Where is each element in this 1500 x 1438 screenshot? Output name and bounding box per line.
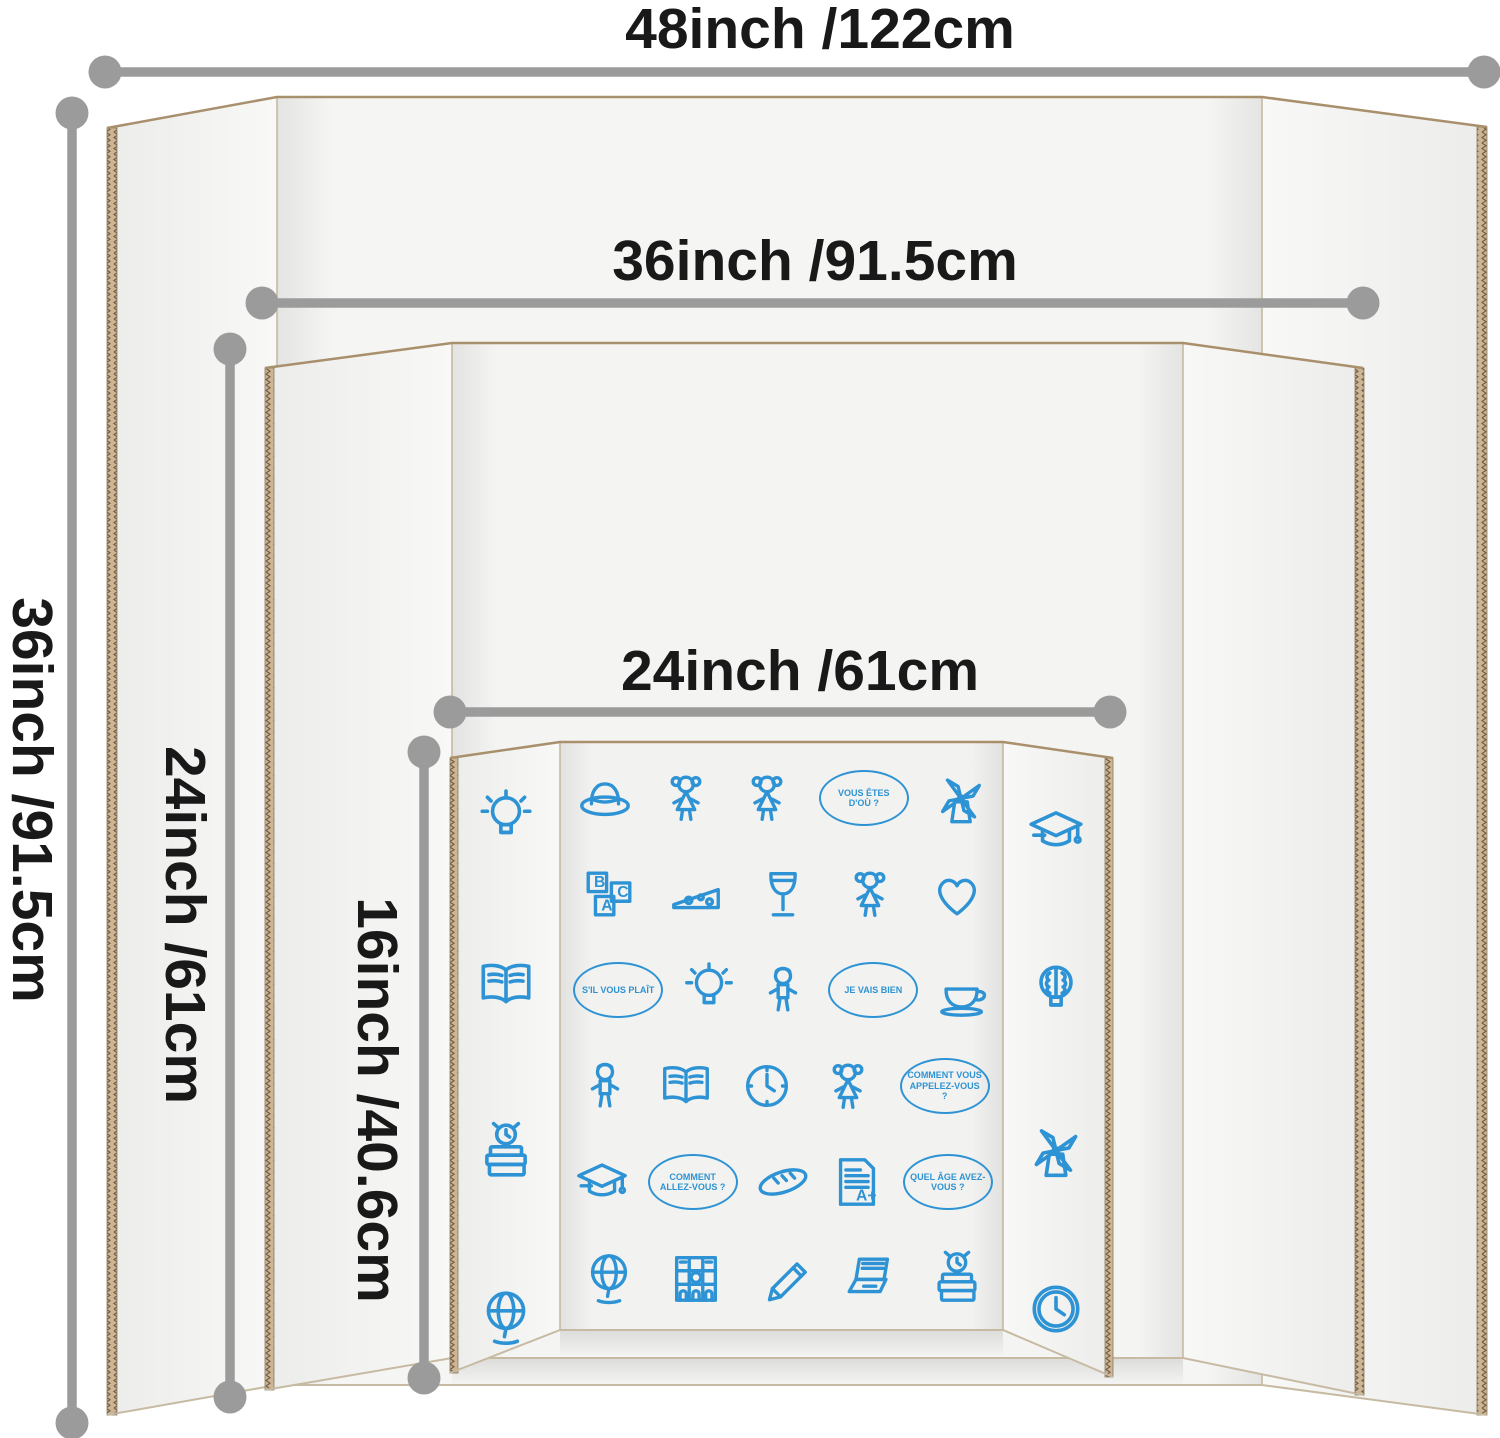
brain-bulb-doodle-icon xyxy=(1025,959,1087,1021)
trifold-board-dimension-diagram: VOUS ÊTES D'OÙ ?BCAS'IL VOUS PLAÎTJE VAI… xyxy=(0,0,1500,1438)
svg-text:B: B xyxy=(594,874,605,891)
speech-bubble: COMMENT ALLEZ-VOUS ? xyxy=(648,1154,738,1210)
heart-doodle-icon xyxy=(928,865,986,923)
boy-doodle-icon xyxy=(754,961,812,1019)
pencil-doodle-icon xyxy=(754,1249,812,1307)
girl-doodle-icon xyxy=(841,865,899,923)
girl-doodle-icon xyxy=(738,769,796,827)
abc-blocks-doodle-icon: BCA xyxy=(580,865,638,923)
doodle-row: S'IL VOUS PLAÎTJE VAIS BIEN xyxy=(565,944,1001,1036)
grad-cap-doodle-icon xyxy=(573,1153,631,1211)
speech-bubble: JE VAIS BIEN xyxy=(828,962,918,1018)
open-book-doodle-icon xyxy=(475,954,537,1016)
corrugated-edge xyxy=(265,368,274,1390)
notre-dame-doodle-icon xyxy=(667,1249,725,1307)
speech-bubble: COMMENT VOUS APPELEZ-VOUS ? xyxy=(900,1058,990,1114)
board-shadow xyxy=(560,1330,1003,1357)
cheese-doodle-icon xyxy=(667,865,725,923)
corrugated-edge xyxy=(1355,368,1364,1395)
speech-bubble: VOUS ÊTES D'OÙ ? xyxy=(819,770,909,826)
height-label-16inch: 16inch /40.6cm xyxy=(348,750,406,1438)
globe-doodle-icon xyxy=(580,1249,638,1307)
baguette-doodle-icon xyxy=(754,1153,812,1211)
corrugated-edge xyxy=(450,758,458,1373)
document-doodle-icon: A+ xyxy=(828,1153,886,1211)
height-label-24inch: 24inch /61cm xyxy=(156,575,214,1275)
speech-bubble: S'IL VOUS PLAÎT xyxy=(573,962,663,1018)
svg-text:A+: A+ xyxy=(856,1187,877,1204)
doodle-row: VOUS ÊTES D'OÙ ? xyxy=(565,752,1001,844)
windmill-doodle-icon xyxy=(1025,1119,1087,1181)
board-shadow xyxy=(452,1358,1183,1386)
corrugated-edge xyxy=(107,128,117,1415)
grad-cap-doodle-icon xyxy=(1025,800,1087,862)
girl-doodle-icon xyxy=(819,1057,877,1115)
alarm-books-doodle-icon xyxy=(928,1249,986,1307)
alarm-books-doodle-icon xyxy=(475,1120,537,1182)
small-board-left-wing-doodles xyxy=(458,788,554,1348)
laptop-doodle-icon xyxy=(841,1249,899,1307)
small-board-center-doodles: VOUS ÊTES D'OÙ ?BCAS'IL VOUS PLAÎTJE VAI… xyxy=(565,752,1001,1324)
wine-glass-doodle-icon xyxy=(754,865,812,923)
teacup-doodle-icon xyxy=(935,961,993,1019)
speech-bubble: QUEL ÂGE AVEZ-VOUS ? xyxy=(903,1154,993,1210)
doodle-row: COMMENT ALLEZ-VOUS ?A+QUEL ÂGE AVEZ-VOUS… xyxy=(565,1136,1001,1228)
width-label-36inch: 36inch /91.5cm xyxy=(465,232,1165,290)
clock-doodle-icon xyxy=(738,1057,796,1115)
doodle-row: COMMENT VOUS APPELEZ-VOUS ? xyxy=(565,1040,1001,1132)
wall-clock-doodle-icon xyxy=(1025,1278,1087,1340)
hat-doodle-icon xyxy=(576,769,634,827)
height-label-36inch: 36inch /91.5cm xyxy=(3,450,61,1150)
windmill-doodle-icon xyxy=(932,769,990,827)
globe-doodle-icon xyxy=(475,1286,537,1348)
corrugated-edge xyxy=(1105,758,1113,1377)
small-board-right-wing-doodles xyxy=(1008,800,1104,1340)
boy-doodle-icon xyxy=(576,1057,634,1115)
corrugated-edge xyxy=(1477,127,1487,1415)
lightbulb-doodle-icon xyxy=(680,961,738,1019)
width-label-24inch: 24inch /61cm xyxy=(450,642,1150,700)
open-book-doodle-icon xyxy=(657,1057,715,1115)
doodle-row xyxy=(565,1232,1001,1324)
svg-text:C: C xyxy=(617,884,628,901)
width-label-48inch: 48inch /122cm xyxy=(470,0,1170,58)
svg-text:A: A xyxy=(601,897,612,914)
lightbulb-doodle-icon xyxy=(475,788,537,850)
doodle-row: BCA xyxy=(565,848,1001,940)
girl-doodle-icon xyxy=(657,769,715,827)
